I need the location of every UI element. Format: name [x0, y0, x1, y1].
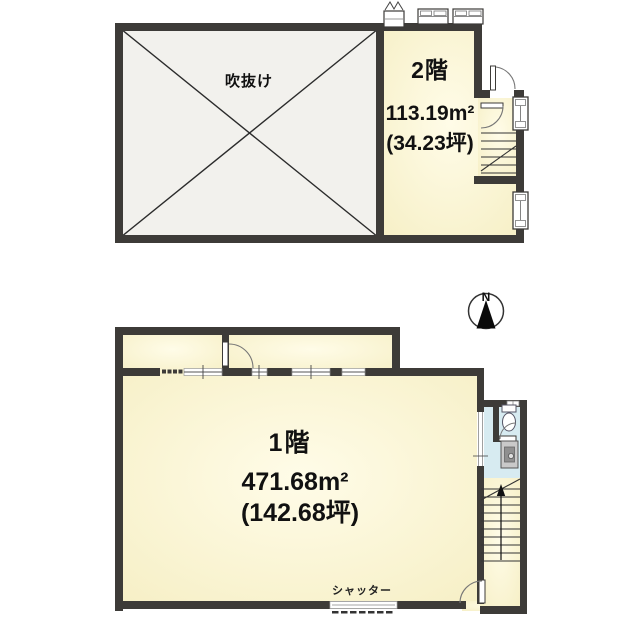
wall — [477, 400, 484, 412]
door-icon — [490, 66, 515, 98]
second-floor-title: 2階 — [411, 59, 449, 82]
shutter-icon — [330, 602, 397, 614]
wall — [330, 368, 342, 376]
wall — [115, 601, 466, 609]
window-icon — [342, 369, 365, 376]
upper-strip-room-right — [226, 331, 397, 372]
window-icon — [453, 9, 483, 24]
window-icon — [513, 192, 528, 229]
upper-strip-room-left — [119, 331, 226, 372]
floor-plan-image: N — [0, 0, 640, 640]
sink-icon — [501, 441, 518, 468]
void-label: 吹抜け — [225, 74, 273, 89]
north-compass-icon: N — [469, 290, 504, 329]
wall — [474, 23, 482, 98]
wall — [228, 368, 252, 376]
folding-door-icon — [384, 2, 404, 27]
window-icon — [418, 9, 448, 24]
toilet-icon — [502, 405, 516, 431]
wall — [115, 235, 524, 243]
first-floor-title: 1階 — [269, 431, 312, 456]
first-floor-area-m2: 471.68m² — [241, 470, 348, 495]
wall — [115, 327, 400, 335]
north-label: N — [482, 290, 491, 304]
first-floor-area-tsubo: (142.68坪) — [241, 501, 359, 526]
wall — [115, 368, 160, 376]
window-icon — [252, 369, 267, 376]
second-floor-area-m2: 113.19m² — [386, 103, 475, 124]
wall — [267, 368, 292, 376]
top-wall-fixtures — [384, 2, 483, 27]
window-icon — [513, 97, 528, 130]
floor-plan-drawing: N — [0, 0, 640, 640]
wall — [376, 23, 384, 243]
wall — [520, 400, 527, 614]
shutter-label: シャッター — [332, 586, 392, 597]
second-floor-area-tsubo: (34.23坪) — [386, 133, 474, 154]
wall — [480, 606, 527, 614]
wall — [493, 400, 499, 440]
wall — [115, 23, 123, 243]
wall — [365, 368, 484, 376]
